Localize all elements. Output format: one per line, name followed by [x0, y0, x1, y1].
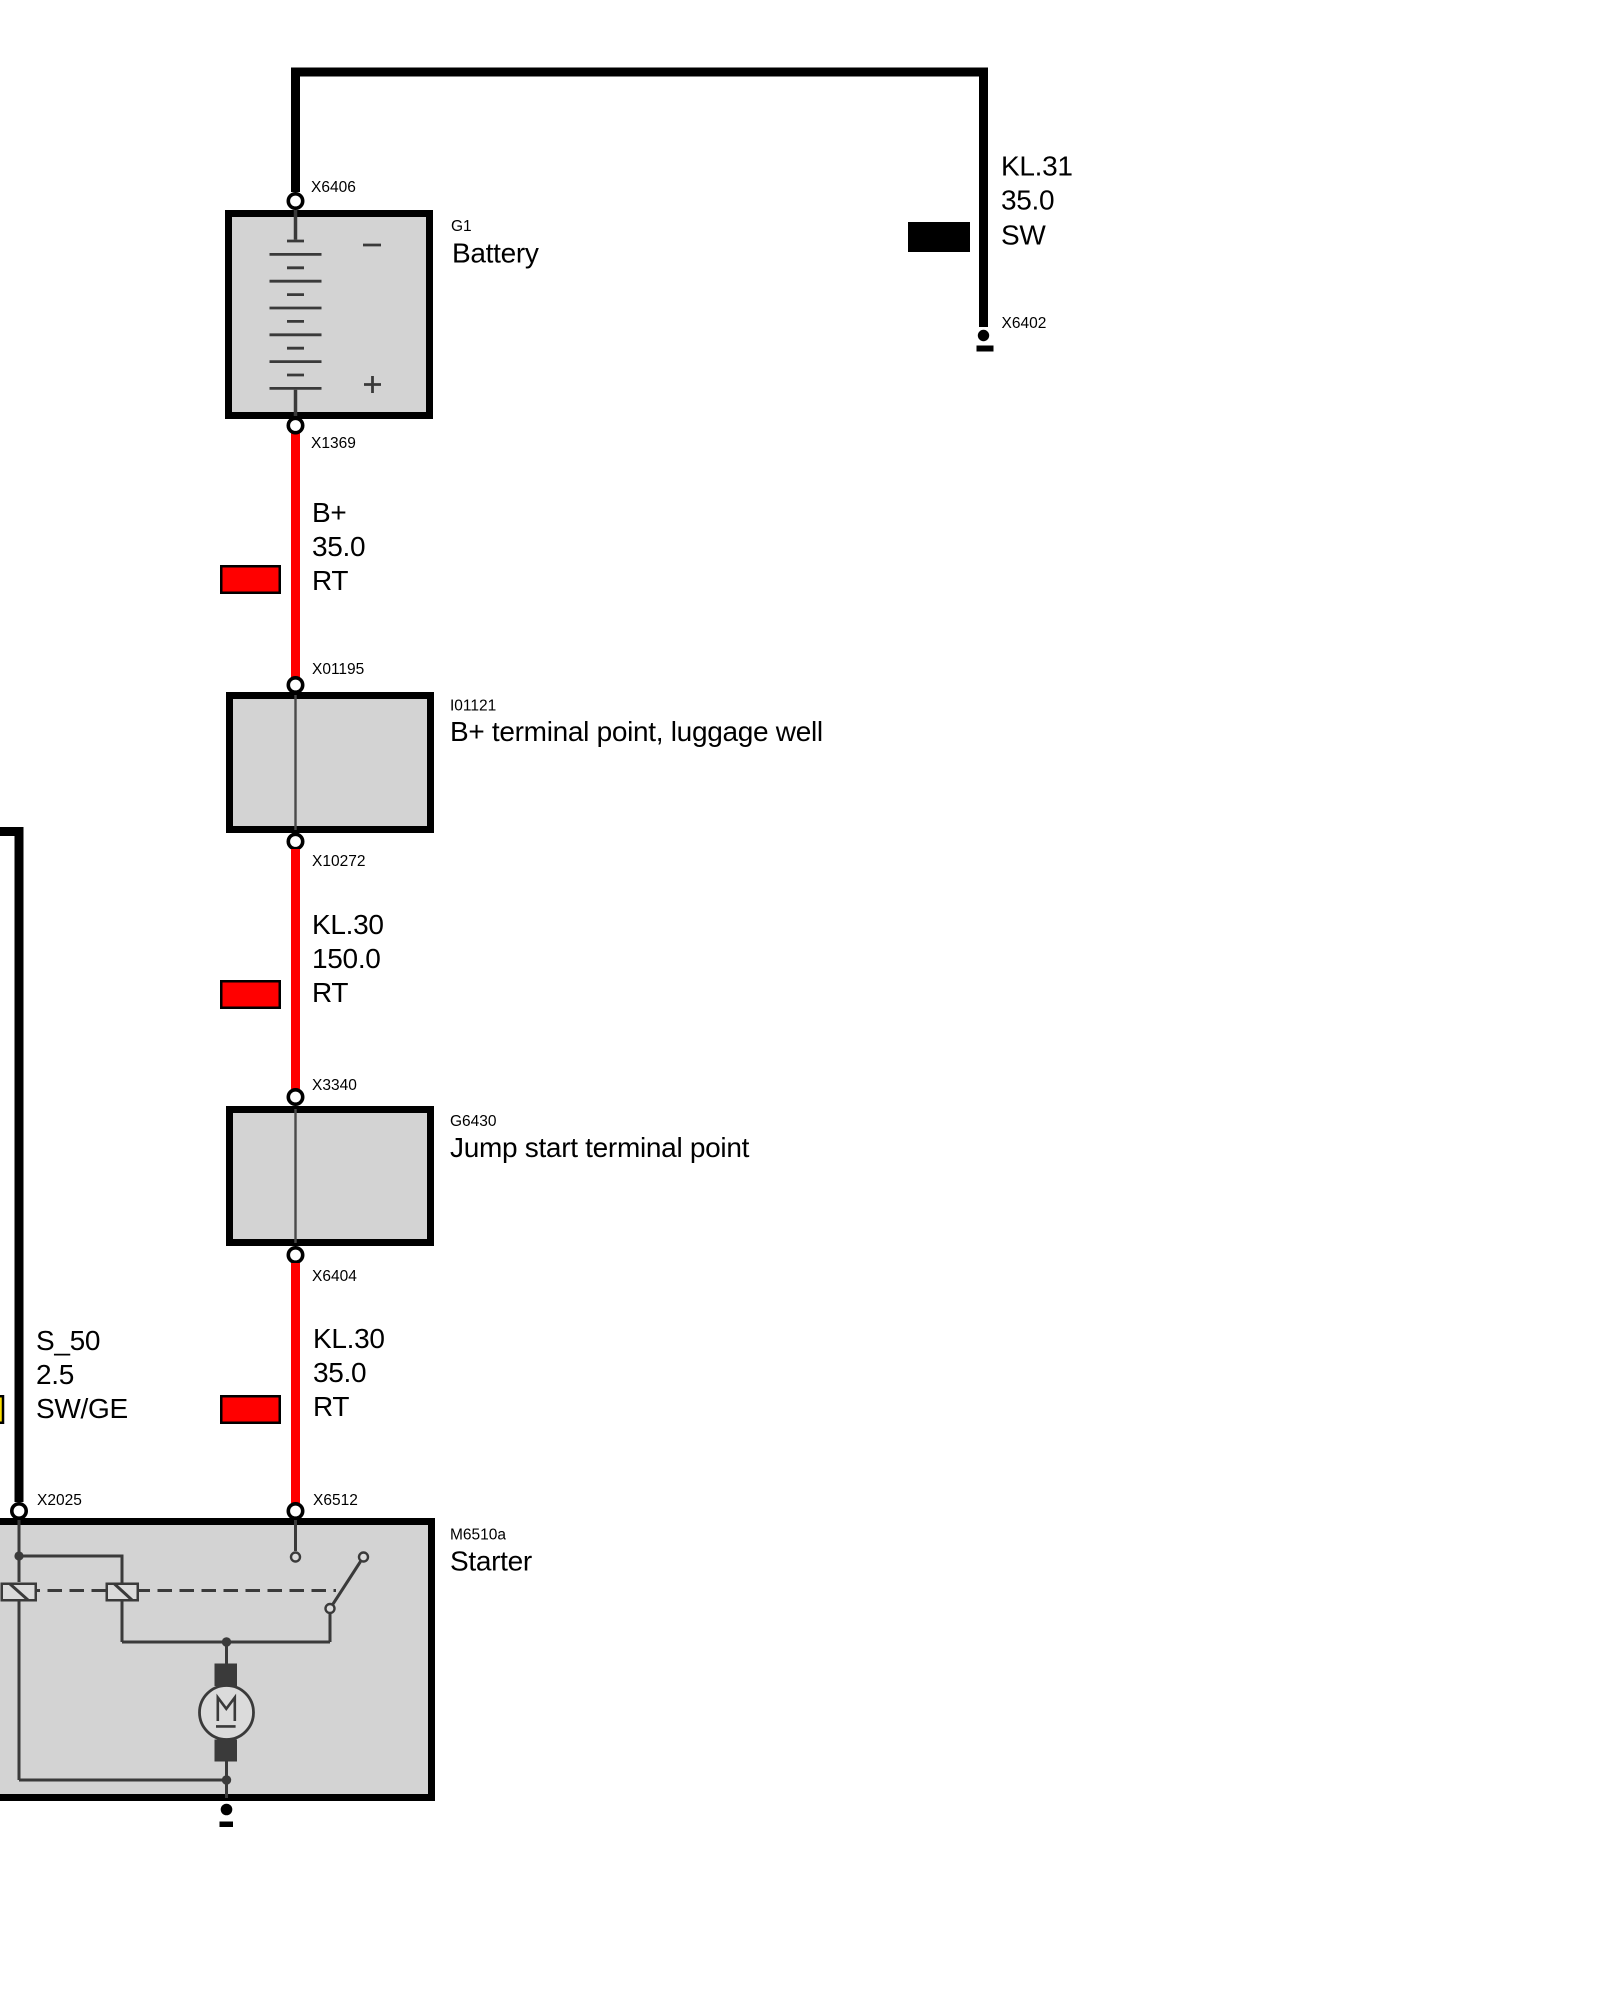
svg-text:X6512: X6512 — [313, 1492, 358, 1509]
svg-text:X1369: X1369 — [311, 435, 356, 452]
svg-text:Jump start terminal point: Jump start terminal point — [450, 1132, 750, 1163]
svg-text:M6510a: M6510a — [450, 1527, 506, 1544]
svg-text:RT: RT — [313, 1391, 349, 1422]
svg-text:G1: G1 — [451, 218, 472, 235]
svg-text:SW/GE: SW/GE — [36, 1393, 128, 1424]
svg-text:RT: RT — [312, 977, 348, 1008]
svg-text:35.0: 35.0 — [312, 531, 365, 562]
svg-text:X6402: X6402 — [1002, 315, 1047, 332]
svg-text:KL.30: KL.30 — [313, 1323, 385, 1354]
svg-text:X6404: X6404 — [312, 1268, 357, 1285]
svg-text:I01121: I01121 — [450, 698, 496, 715]
svg-text:G6430: G6430 — [450, 1113, 497, 1130]
svg-text:X01195: X01195 — [312, 661, 364, 678]
svg-text:SW: SW — [1001, 220, 1046, 251]
svg-text:X10272: X10272 — [312, 853, 365, 870]
svg-text:X2025: X2025 — [37, 1492, 82, 1509]
svg-text:KL.30: KL.30 — [312, 909, 384, 940]
svg-text:B+ terminal point, luggage wel: B+ terminal point, luggage well — [450, 716, 823, 747]
svg-text:35.0: 35.0 — [1001, 185, 1054, 216]
svg-text:150.0: 150.0 — [312, 943, 381, 974]
svg-text:B+: B+ — [312, 497, 346, 528]
svg-text:2.5: 2.5 — [36, 1359, 74, 1390]
svg-text:KL.31: KL.31 — [1001, 151, 1073, 182]
svg-text:X6406: X6406 — [311, 179, 356, 196]
svg-text:RT: RT — [312, 565, 348, 596]
svg-text:35.0: 35.0 — [313, 1357, 366, 1388]
svg-text:Battery: Battery — [452, 238, 539, 269]
svg-text:S_50: S_50 — [36, 1325, 100, 1356]
svg-text:Starter: Starter — [450, 1546, 532, 1577]
svg-text:X3340: X3340 — [312, 1077, 357, 1094]
